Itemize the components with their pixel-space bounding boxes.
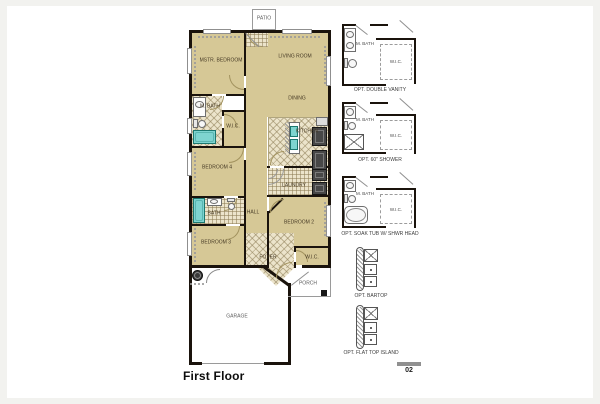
- range-oven: [312, 150, 327, 171]
- wall-segment: [192, 224, 226, 226]
- room-label: M. BATH: [200, 105, 220, 110]
- dimension-text: [194, 150, 196, 190]
- wall-segment: [342, 176, 356, 178]
- door-line: [355, 103, 367, 113]
- window-icon: [187, 118, 192, 134]
- toilet-icon: [348, 122, 356, 130]
- kitchen-floor-edge: [268, 117, 269, 166]
- wall-segment: [240, 224, 244, 226]
- option-panel-soak-tub: M. BATH W.I.C.: [338, 170, 422, 234]
- wall-segment: [376, 114, 416, 116]
- door-line: [399, 98, 413, 111]
- sink-icon: [346, 42, 354, 49]
- dimension-text: [198, 36, 240, 38]
- wall-segment: [238, 196, 244, 198]
- floor-title: First Floor: [183, 369, 245, 383]
- window-icon: [187, 232, 192, 256]
- master-bathtub: [193, 130, 216, 144]
- soak-tub-basin-icon: [346, 208, 366, 222]
- sink-icon: [346, 182, 354, 189]
- bath2-bathtub: [193, 198, 205, 223]
- island-cooktop-icon: [364, 307, 378, 320]
- water-heater-note: [190, 283, 204, 285]
- island-cooktop-icon: [364, 249, 378, 262]
- option-closet-label: W.I.C.: [390, 134, 402, 139]
- sheet-number: 02: [397, 367, 421, 374]
- room-label: W.I.C.: [305, 256, 319, 261]
- shower-icon: [344, 134, 364, 150]
- bath2-sink-icon: [210, 199, 218, 204]
- island-hatch: [357, 307, 363, 347]
- wall-segment: [414, 38, 416, 84]
- window-icon: [326, 56, 331, 86]
- dimension-text: [194, 228, 196, 262]
- option-caption: OPT. DOUBLE VANITY: [338, 88, 422, 93]
- option-bartop-drawing: [356, 247, 386, 291]
- wall-segment: [244, 233, 246, 268]
- wall-segment: [294, 246, 328, 248]
- sheet-number-bar: [397, 362, 421, 366]
- option-caption: OPT. BARTOP: [341, 294, 401, 299]
- hall-floor: [246, 117, 267, 233]
- dimension-text: [270, 36, 322, 38]
- room-label: PORCH: [299, 282, 317, 287]
- dryer: [312, 182, 327, 195]
- water-heater-ring: [194, 272, 201, 279]
- wall-segment: [244, 160, 246, 233]
- garage-entry-door-swing-icon: [206, 269, 220, 283]
- option-flat-top-island-drawing: [356, 305, 386, 349]
- option-closet-label: W.I.C.: [390, 60, 402, 65]
- toilet-icon: [348, 195, 356, 203]
- toilet-icon: [348, 59, 357, 68]
- option-caption: OPT. SOAK TUB W/ SHWR HEAD: [330, 232, 430, 237]
- wall-segment: [370, 102, 388, 104]
- wall-segment: [376, 188, 416, 190]
- room-label: KITCHEN: [296, 130, 318, 135]
- wall-segment: [414, 114, 416, 154]
- room-label: HALL: [247, 211, 260, 216]
- option-caption: OPT. FLAT TOP ISLAND: [333, 351, 409, 356]
- option-closet-label: W.I.C.: [390, 208, 402, 213]
- window-icon: [187, 48, 192, 74]
- sink-icon: [346, 31, 354, 38]
- room-label: DINING: [288, 97, 306, 102]
- option-panel-shower: M. BATH W.I.C.: [338, 96, 422, 160]
- master-toilet-icon: [198, 120, 206, 128]
- wall-segment: [244, 30, 246, 76]
- window-icon: [282, 29, 312, 34]
- option-bath-label: M. BATH: [356, 192, 374, 197]
- sink-icon: [346, 108, 354, 116]
- option-bath-label: M. BATH: [356, 118, 374, 123]
- island-sink-icon: [364, 334, 377, 345]
- wall-segment: [244, 88, 246, 148]
- kitchen-sink-icon: [290, 139, 298, 150]
- kitchen-counter: [316, 117, 328, 126]
- dimension-text: [194, 44, 196, 88]
- dimension-text: [324, 200, 326, 236]
- page-margin: [0, 0, 7, 404]
- wall-segment: [192, 94, 212, 96]
- page-margin: [593, 0, 600, 404]
- wall-segment: [302, 265, 331, 268]
- porch-outline: [330, 268, 331, 297]
- wall-segment: [342, 24, 356, 26]
- door-line: [355, 25, 367, 35]
- bath2-toilet-icon: [228, 203, 235, 210]
- patio-label: PATIO: [257, 17, 271, 22]
- wall-segment: [376, 38, 416, 40]
- wall-segment: [294, 262, 296, 268]
- room-label: MSTR. BEDROOM: [200, 59, 243, 64]
- garage-door-line: [202, 363, 264, 364]
- page-margin: [0, 398, 600, 404]
- floor-plan-sheet: PATIO: [0, 0, 600, 404]
- room-label: BEDROOM 4: [202, 166, 232, 171]
- island-sink-icon: [364, 322, 377, 333]
- wall-segment: [414, 188, 416, 228]
- washer: [312, 169, 327, 181]
- island-sink-icon: [364, 264, 377, 275]
- dimension-text: [324, 44, 326, 84]
- room-label: W.I.C.: [226, 125, 240, 130]
- wall-segment: [370, 176, 388, 178]
- wall-segment: [342, 84, 386, 86]
- wall-segment: [226, 94, 244, 96]
- bartop-hatch: [357, 249, 363, 289]
- wall-segment: [189, 265, 267, 268]
- door-line: [355, 177, 367, 187]
- wall-segment: [342, 152, 386, 154]
- room-label: LIVING ROOM: [278, 55, 311, 60]
- bath2-toilet-tank: [227, 198, 235, 202]
- wall-segment: [342, 102, 356, 104]
- wall-segment: [222, 110, 244, 112]
- wall-segment: [370, 24, 388, 26]
- room-label: LAUNDRY: [282, 184, 306, 189]
- window-icon: [187, 152, 192, 176]
- wall-segment: [222, 128, 224, 148]
- window-icon: [203, 29, 231, 34]
- room-label: BATH: [208, 212, 221, 217]
- wall-segment: [342, 226, 386, 228]
- porch-outline: [288, 296, 331, 297]
- door-line: [399, 172, 413, 185]
- wall-segment: [267, 195, 328, 197]
- page-margin: [0, 0, 600, 6]
- wall-segment: [267, 166, 270, 168]
- option-caption: OPT. 60" SHOWER: [338, 158, 422, 163]
- porch-column: [321, 290, 327, 296]
- room-label: BEDROOM 2: [284, 221, 314, 226]
- room-label: BEDROOM 3: [201, 241, 231, 246]
- door-line: [399, 20, 413, 33]
- room-label: FOYER: [259, 256, 276, 261]
- room-label: GARAGE: [226, 315, 247, 320]
- option-panel-double-vanity: M. BATH W.I.C.: [338, 18, 422, 92]
- option-bath-label: M. BATH: [356, 42, 374, 47]
- island-sink-icon: [364, 276, 377, 287]
